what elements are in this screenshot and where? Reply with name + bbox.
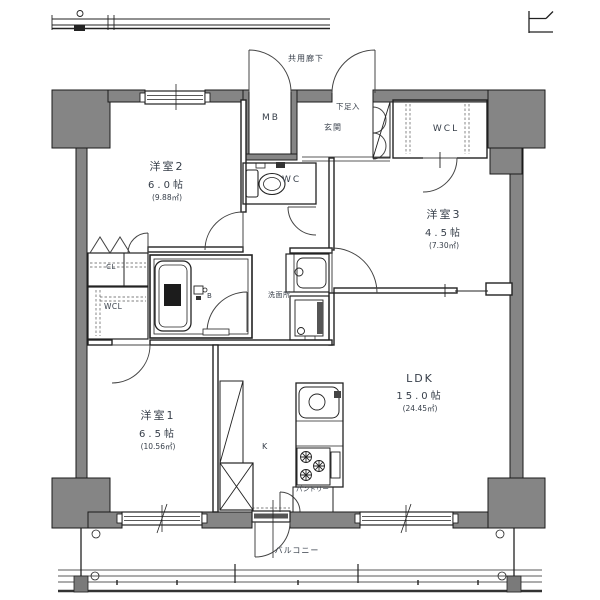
floor-plan-canvas: 共用廊下 MB 下足入 玄関 WCL WC CL WCL B 洗面所 K パント… xyxy=(0,0,600,600)
bedroom1-door xyxy=(112,345,150,383)
wcl-left-label: WCL xyxy=(104,303,122,311)
pipe-space-icon xyxy=(220,463,253,510)
room-bedroom1: 洋室1 6.5帖 (10.56㎡) xyxy=(139,407,177,452)
wc-label: WC xyxy=(282,176,301,186)
door-swings xyxy=(90,50,457,557)
room-bedroom1-name: 洋室1 xyxy=(139,407,177,423)
room-bedroom3-area: (7.30㎡) xyxy=(425,240,463,251)
sliding-door-pocket xyxy=(486,283,512,295)
washbasin-icon xyxy=(286,254,329,292)
balcony-railing xyxy=(58,528,542,592)
entrance-door xyxy=(332,50,375,93)
column-top-left xyxy=(52,90,110,148)
bedroom2-door xyxy=(205,212,243,250)
balcony-label: バルコニー xyxy=(275,547,320,556)
corridor-railing xyxy=(52,11,330,32)
balcony-post-icon xyxy=(507,576,521,592)
right-wall xyxy=(510,148,523,478)
room-bedroom2-area: (9.88㎡) xyxy=(148,192,186,203)
pantry-door xyxy=(280,492,300,512)
top-wall-seg xyxy=(108,90,145,102)
top-wall-seg xyxy=(297,90,332,102)
window-bedroom1 xyxy=(117,504,207,533)
room-bedroom1-size: 6.5帖 xyxy=(139,425,177,440)
top-wall-seg xyxy=(205,90,245,102)
room-bedroom3-size: 4.5帖 xyxy=(425,224,463,239)
wcl-right-label: WCL xyxy=(433,125,459,135)
right-wall-ext xyxy=(490,148,522,174)
column-top-right xyxy=(488,90,545,148)
bottom-wall-seg xyxy=(202,512,252,528)
toilet-icon xyxy=(246,162,285,197)
railing-post-icon xyxy=(74,25,85,31)
floor-plan-drawing xyxy=(0,0,600,600)
room-ldk-size: 15.0帖 xyxy=(396,387,443,402)
washroom-label: 洗面所 xyxy=(268,292,291,300)
mb-wall xyxy=(243,154,297,160)
bottom-wall-seg xyxy=(290,512,360,528)
entrance-label: 玄関 xyxy=(324,124,342,133)
window-ldk xyxy=(355,504,458,533)
room-bedroom2: 洋室2 6.0帖 (9.88㎡) xyxy=(148,158,186,203)
wc-door xyxy=(288,207,316,235)
ldk-door xyxy=(332,248,377,293)
bath-label: B xyxy=(207,293,212,301)
mb-door xyxy=(249,50,291,92)
wcl-left-box xyxy=(88,287,148,339)
closet-box xyxy=(88,253,148,286)
column-bottom-right xyxy=(488,478,545,528)
room-ldk: LDK 15.0帖 (24.45㎡) xyxy=(396,372,443,414)
closet-bifold-door xyxy=(90,233,148,253)
room-bedroom2-size: 6.0帖 xyxy=(148,176,186,191)
mb-wall xyxy=(291,90,297,160)
pantry-label: パントリー xyxy=(296,486,329,493)
stove-icon xyxy=(297,448,340,485)
structural-walls xyxy=(52,90,545,528)
meter-box-label: MB xyxy=(262,114,280,124)
shoe-cabinet-label: 下足入 xyxy=(336,103,360,111)
kitchen-label: K xyxy=(262,443,268,452)
hose-bib-icon xyxy=(77,11,83,17)
north-indicator-icon xyxy=(529,11,553,33)
tall-cabinet-icon xyxy=(220,381,243,463)
room-bedroom3: 洋室3 4.5帖 (7.30㎡) xyxy=(425,206,463,251)
wc-room xyxy=(243,163,316,204)
window-bedroom2 xyxy=(140,84,210,110)
room-bedroom3-name: 洋室3 xyxy=(425,206,463,222)
closet-label: CL xyxy=(106,264,116,272)
common-corridor-label: 共用廊下 xyxy=(288,55,324,64)
room-bedroom2-name: 洋室2 xyxy=(148,158,186,174)
balcony-post-icon xyxy=(74,576,88,592)
washing-machine-icon xyxy=(290,296,329,340)
room-bedroom1-area: (10.56㎡) xyxy=(139,441,177,452)
room-ldk-name: LDK xyxy=(396,372,443,385)
left-wall xyxy=(76,148,87,478)
room-ldk-area: (24.45㎡) xyxy=(396,403,443,414)
